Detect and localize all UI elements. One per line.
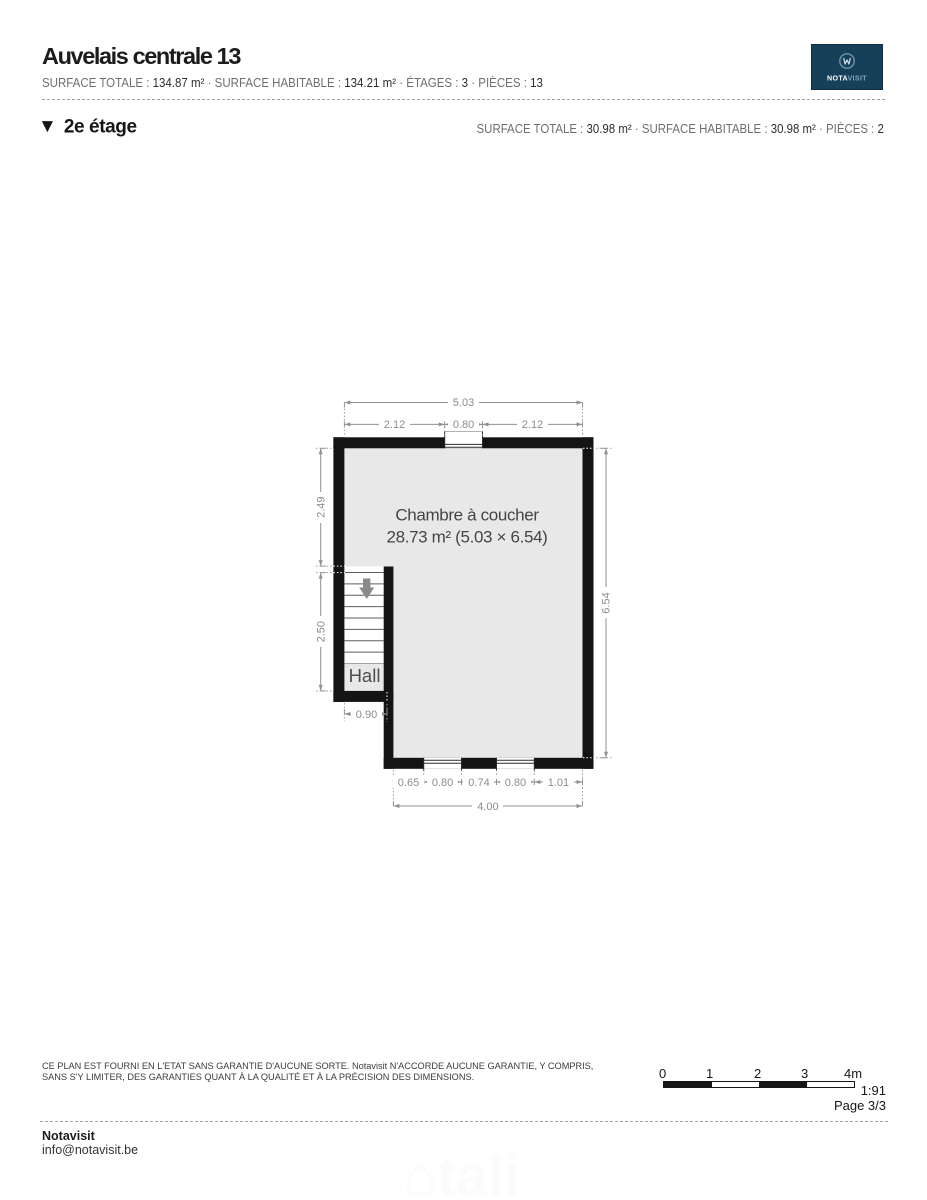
svg-text:5.03: 5.03 [453, 397, 474, 409]
svg-text:4.00: 4.00 [477, 801, 498, 813]
svg-text:2.50: 2.50 [315, 621, 327, 642]
svg-text:6.54: 6.54 [601, 592, 613, 613]
svg-text:Hall: Hall [349, 665, 381, 686]
svg-text:2.12: 2.12 [384, 419, 405, 431]
svg-text:2.49: 2.49 [315, 496, 327, 517]
svg-text:0.65: 0.65 [398, 777, 419, 789]
svg-text:0.90: 0.90 [356, 709, 377, 721]
svg-text:Chambre à coucher: Chambre à coucher [395, 506, 539, 525]
svg-text:0.80: 0.80 [432, 777, 453, 789]
svg-text:0.80: 0.80 [505, 777, 526, 789]
svg-text:28.73 m² (5.03 × 6.54): 28.73 m² (5.03 × 6.54) [387, 528, 548, 547]
svg-text:0.74: 0.74 [468, 777, 489, 789]
svg-text:2.12: 2.12 [522, 419, 543, 431]
svg-text:1.01: 1.01 [548, 777, 569, 789]
svg-text:0.80: 0.80 [453, 419, 474, 431]
